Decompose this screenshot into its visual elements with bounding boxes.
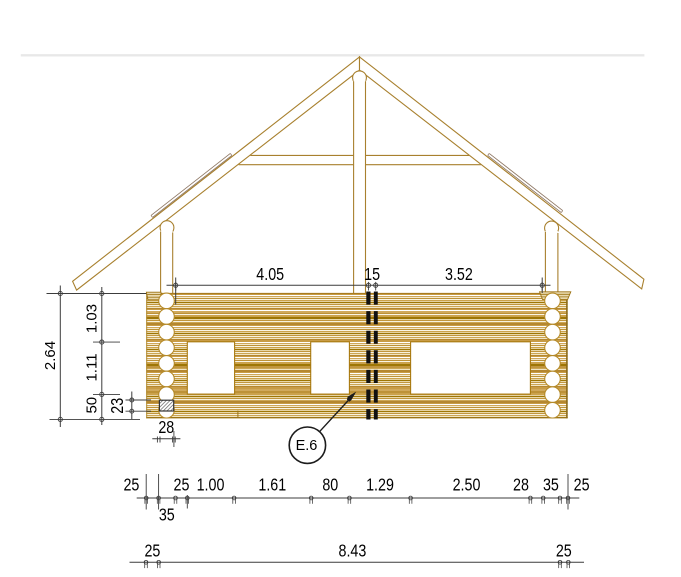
svg-text:25: 25	[574, 475, 590, 495]
svg-text:25: 25	[123, 475, 139, 495]
svg-text:25: 25	[174, 475, 190, 495]
svg-text:50: 50	[83, 397, 100, 414]
svg-text:E.6: E.6	[296, 438, 318, 454]
svg-text:4.05: 4.05	[256, 264, 284, 284]
svg-text:25: 25	[144, 541, 160, 561]
svg-text:8.43: 8.43	[339, 541, 367, 561]
svg-text:80: 80	[322, 475, 338, 495]
svg-text:1.11: 1.11	[83, 353, 100, 381]
svg-text:35: 35	[543, 475, 559, 495]
svg-text:35: 35	[159, 505, 175, 525]
svg-text:28: 28	[513, 475, 529, 495]
svg-text:3.52: 3.52	[445, 264, 473, 284]
svg-text:23: 23	[107, 398, 127, 414]
svg-text:1.00: 1.00	[197, 475, 225, 495]
svg-text:1.61: 1.61	[258, 475, 286, 495]
svg-text:25: 25	[556, 541, 572, 561]
svg-text:2.64: 2.64	[42, 341, 59, 370]
svg-text:28: 28	[158, 417, 174, 437]
svg-text:2.50: 2.50	[453, 475, 481, 495]
svg-text:1.29: 1.29	[366, 475, 394, 495]
svg-text:15: 15	[364, 264, 380, 284]
svg-text:1.03: 1.03	[83, 304, 100, 333]
